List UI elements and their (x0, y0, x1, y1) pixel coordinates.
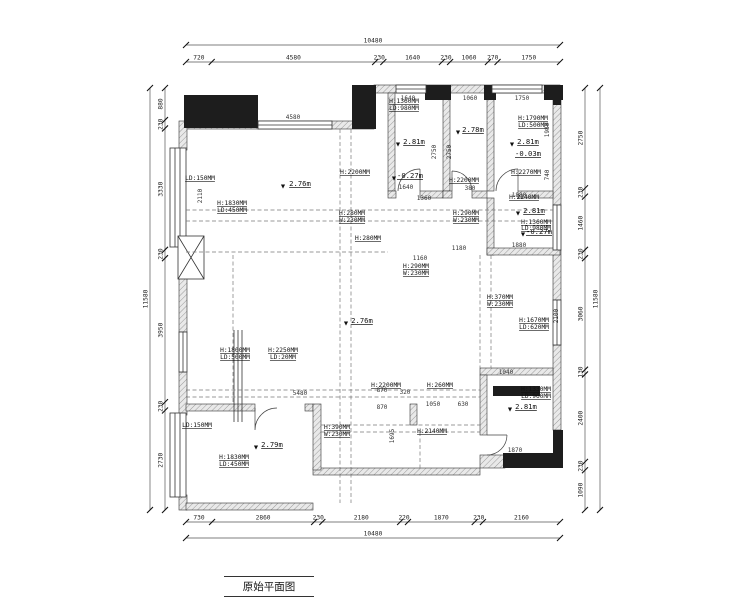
dim-label: 1870 (434, 515, 449, 522)
annotation: H:1800MM (220, 347, 250, 354)
annotation: H:1830MM (217, 200, 247, 207)
door-arc (487, 435, 507, 455)
dim-label: 230 (158, 400, 165, 411)
interior-dim: 380 (465, 185, 476, 192)
ceiling-height-top-mid1: 2.81m (403, 137, 425, 146)
annotation: LD:980MM (521, 225, 551, 232)
level-symbol: ▼ (254, 445, 259, 451)
annotation: H:2250MM (268, 347, 298, 354)
dim-label: 230 (578, 248, 585, 259)
interior-dim: 1060 (463, 95, 478, 102)
dim-label: 730 (193, 515, 204, 522)
dim-label: 230 (578, 460, 585, 471)
annotation: H:290MM (453, 210, 479, 217)
dim-label: 10480 (364, 531, 383, 538)
dim-label: 2860 (256, 515, 271, 522)
ceiling-height-right-mid: 2.81m (523, 206, 545, 215)
annotation: LD:20MM (270, 354, 296, 361)
annotation: W:230MM (324, 431, 350, 438)
level-symbol: ▼ (281, 184, 286, 190)
interior-dim: 630 (458, 401, 469, 408)
dim-label: 11580 (593, 289, 600, 308)
level-symbol: ▼ (516, 211, 521, 217)
dim-label: 2160 (514, 515, 529, 522)
annotation: H:280MM (339, 210, 365, 217)
dim-label: 220 (398, 515, 409, 522)
interior-dim: 870 (377, 387, 388, 394)
interior-dim: 1880 (512, 242, 527, 249)
annotation: H:2140MM (417, 428, 447, 435)
annotation: LD:500MM (220, 354, 250, 361)
annotation: LD:980MM (389, 105, 419, 112)
interior-dim: 2110 (197, 188, 204, 203)
dim-label: 1750 (521, 55, 536, 62)
interior-dim: 1640 (401, 95, 416, 102)
annotation: W:230MM (403, 270, 429, 277)
dim-label: 230 (374, 55, 385, 62)
ceiling-height-top-right: 2.81m (517, 137, 539, 146)
floor-level-top-right: -0.03m (515, 149, 541, 158)
dim-label: 10480 (364, 38, 383, 45)
dim-label: 230 (578, 187, 585, 198)
dim-label: 230 (158, 118, 165, 129)
dim-label: 230 (313, 515, 324, 522)
annotation: LD:620MM (519, 324, 549, 331)
annotation: W:230MM (453, 217, 479, 224)
ceiling-height-center: 2.76m (351, 316, 373, 325)
window-top-right-room (492, 85, 542, 93)
level-symbol: ▼ (344, 321, 349, 327)
interior-dim: 1980 (544, 122, 551, 137)
window-right-mid (553, 205, 561, 250)
annotation: LD:150MM (182, 422, 212, 429)
dim-label: 3330 (158, 181, 165, 196)
interior-dim: 1160 (413, 255, 428, 262)
dim-label: 1460 (578, 215, 585, 230)
dim-label: 2750 (578, 130, 585, 145)
interior-dim: 1880 (512, 192, 527, 199)
interior-dim: 5480 (293, 390, 308, 397)
floor-plan-drawing: ▼ 2.76m ▼ 2.81m ▼ -0.27m ▼ 2.78m ▼ 2.81m… (0, 0, 750, 601)
window-beam-annotations: H:1360MM LD:980MM H:1790MM LD:500MM H:22… (182, 98, 551, 468)
ceiling-height-top-left: 2.76m (289, 179, 311, 188)
dim-label: 2180 (354, 515, 369, 522)
dim-label: 2400 (578, 410, 585, 425)
interior-dimensions: 4580 1640 1060 1750 1640 380 1880 1880 1… (197, 95, 560, 454)
interior-dim: 2750 (431, 144, 438, 159)
annotation: H:370MM (487, 294, 513, 301)
interior-dim: 1750 (515, 95, 530, 102)
dim-label: 1640 (405, 55, 420, 62)
window-left-mid (179, 332, 187, 372)
annotation: H:260MM (427, 382, 453, 389)
dim-label: 3950 (158, 322, 165, 337)
window-top-left-room (258, 121, 332, 129)
dim-label: 230 (158, 248, 165, 259)
level-symbol: ▼ (456, 130, 461, 136)
dim-label: 11580 (143, 289, 150, 308)
annotation: H:2200MM (340, 169, 370, 176)
drawing-title: 原始平面图 (224, 576, 314, 597)
annotation: H:2270MM (511, 169, 541, 176)
interior-dim: 1695 (389, 428, 396, 443)
annotation: H:1790MM (518, 115, 548, 122)
interior-dim: 1040 (499, 369, 514, 376)
interior-dim: 2100 (553, 308, 560, 323)
ceiling-height-bottom-left: 2.79m (261, 440, 283, 449)
ceiling-height-bottom-right: 2.81m (515, 402, 537, 411)
interior-dim: 320 (400, 389, 411, 396)
dim-label: 720 (193, 55, 204, 62)
level-symbol: ▼ (508, 407, 513, 413)
annotation: H:1670MM (519, 317, 549, 324)
room-labels: ▼ 2.76m ▼ 2.81m ▼ -0.27m ▼ 2.78m ▼ 2.81m… (254, 125, 552, 451)
dim-label: 230 (473, 515, 484, 522)
interior-dim: 1640 (399, 184, 414, 191)
flue-column (178, 236, 204, 279)
interior-dim: 2750 (446, 144, 453, 159)
dim-label: 1060 (462, 55, 477, 62)
dim-label: 270 (487, 55, 498, 62)
annotation: LD:450MM (219, 461, 249, 468)
floor-level-top-mid1: -0.27m (397, 171, 423, 180)
dim-label: 4580 (286, 55, 301, 62)
annotation: W:230MM (339, 217, 365, 224)
dim-label: 880 (158, 98, 165, 109)
interior-dim: 1180 (452, 245, 467, 252)
annotation: H:390MM (324, 424, 350, 431)
interior-dim: 740 (544, 169, 551, 180)
annotation: LD:960MM (521, 393, 551, 400)
annotation: H:290MM (403, 263, 429, 270)
dim-label: 130 (578, 366, 585, 377)
annotation: H:1830MM (219, 454, 249, 461)
annotation: LD:150MM (185, 175, 215, 182)
annotation: W:230MM (487, 301, 513, 308)
door-arc (255, 408, 277, 430)
dim-label: 3060 (578, 306, 585, 321)
annotation: H:2200MM (449, 177, 479, 184)
annotation: H:1330MM (521, 386, 551, 393)
dim-label: 230 (440, 55, 451, 62)
interior-dim: 1050 (426, 401, 441, 408)
annotation: H:280MM (355, 235, 381, 242)
level-symbol: ▼ (510, 142, 515, 148)
level-symbol: ▼ (396, 142, 401, 148)
annotation: LD:450MM (217, 207, 247, 214)
interior-dim: 1360 (417, 195, 432, 202)
ceiling-height-top-mid2: 2.78m (462, 125, 484, 134)
dim-label: 2730 (158, 453, 165, 468)
interior-dim: 870 (377, 404, 388, 411)
bay-window-top-left (170, 148, 186, 247)
interior-dim: 4580 (286, 114, 301, 121)
window-top-mid-room (396, 85, 426, 93)
interior-dim: 1870 (508, 447, 523, 454)
floor-plan-page: ▼ 2.76m ▼ 2.81m ▼ -0.27m ▼ 2.78m ▼ 2.81m… (0, 0, 750, 601)
dim-label: 1090 (578, 482, 585, 497)
